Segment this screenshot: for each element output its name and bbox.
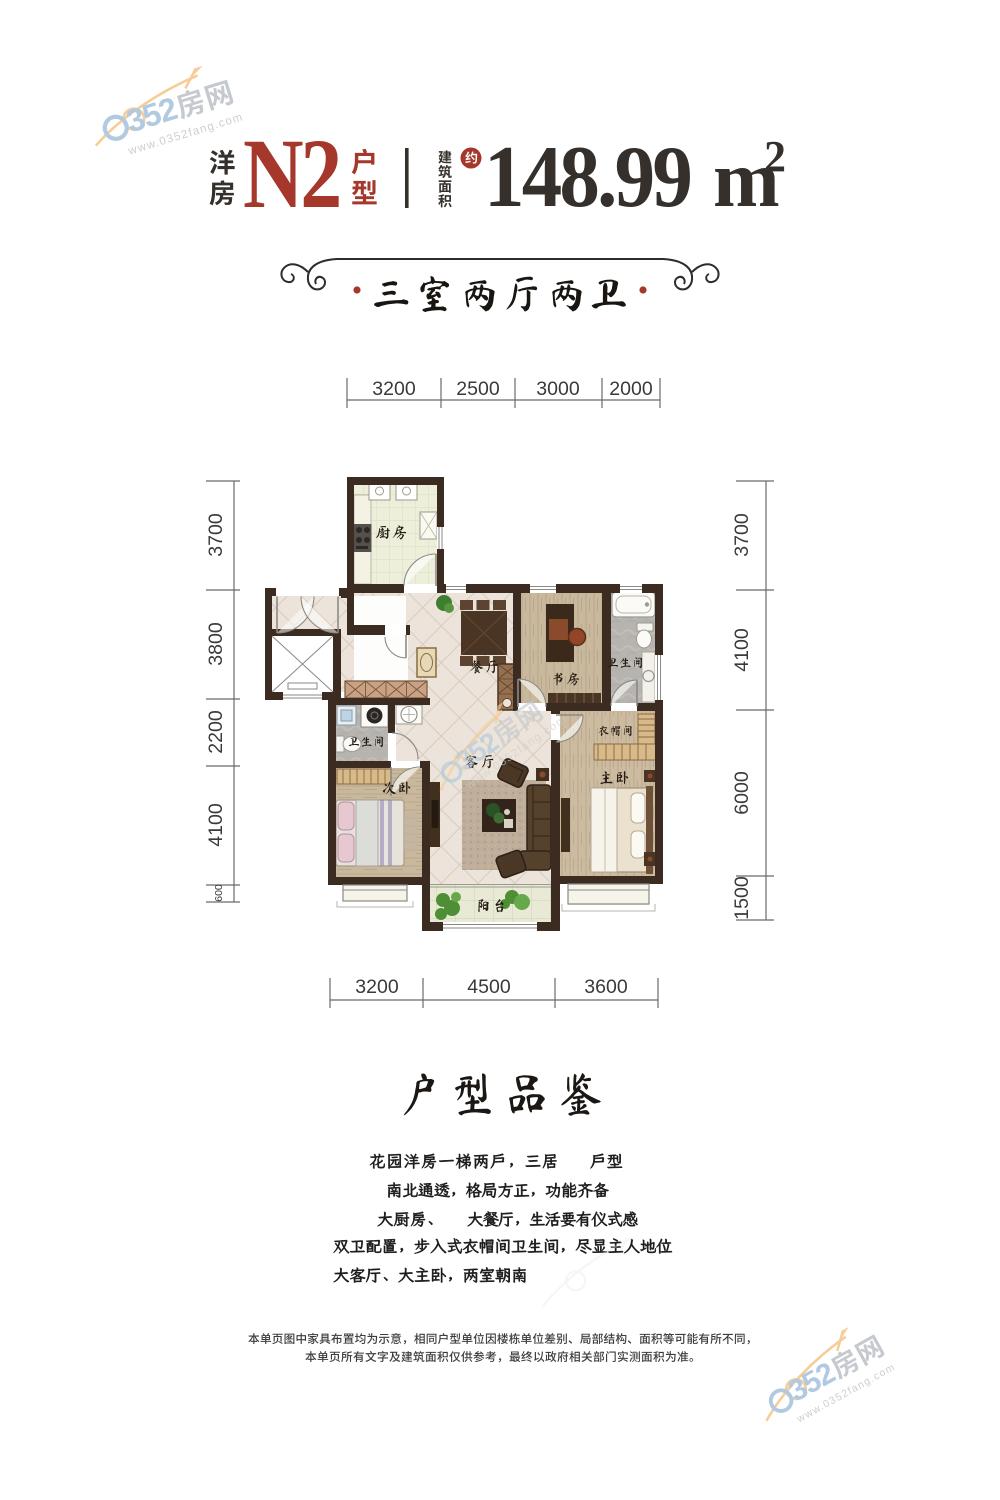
svg-text:6000: 6000 (731, 771, 753, 815)
svg-text:3700: 3700 (731, 513, 753, 557)
svg-text:4100: 4100 (731, 628, 753, 672)
svg-text:N2: N2 (243, 118, 339, 228)
svg-text:3200: 3200 (355, 976, 399, 998)
svg-text:2500: 2500 (456, 378, 500, 400)
svg-text:3600: 3600 (584, 976, 628, 998)
svg-text:3700: 3700 (205, 513, 227, 557)
svg-text:3800: 3800 (205, 622, 227, 666)
svg-text:4100: 4100 (205, 803, 227, 847)
svg-text:1500: 1500 (731, 876, 753, 920)
svg-text:3000: 3000 (536, 378, 580, 400)
svg-text:2: 2 (764, 132, 786, 181)
svg-text:148.99: 148.99 (484, 129, 691, 226)
svg-text:2200: 2200 (205, 710, 227, 754)
svg-text:2000: 2000 (609, 378, 653, 400)
svg-text:4500: 4500 (467, 976, 511, 998)
svg-text:3200: 3200 (372, 378, 416, 400)
svg-text:600: 600 (213, 884, 225, 902)
